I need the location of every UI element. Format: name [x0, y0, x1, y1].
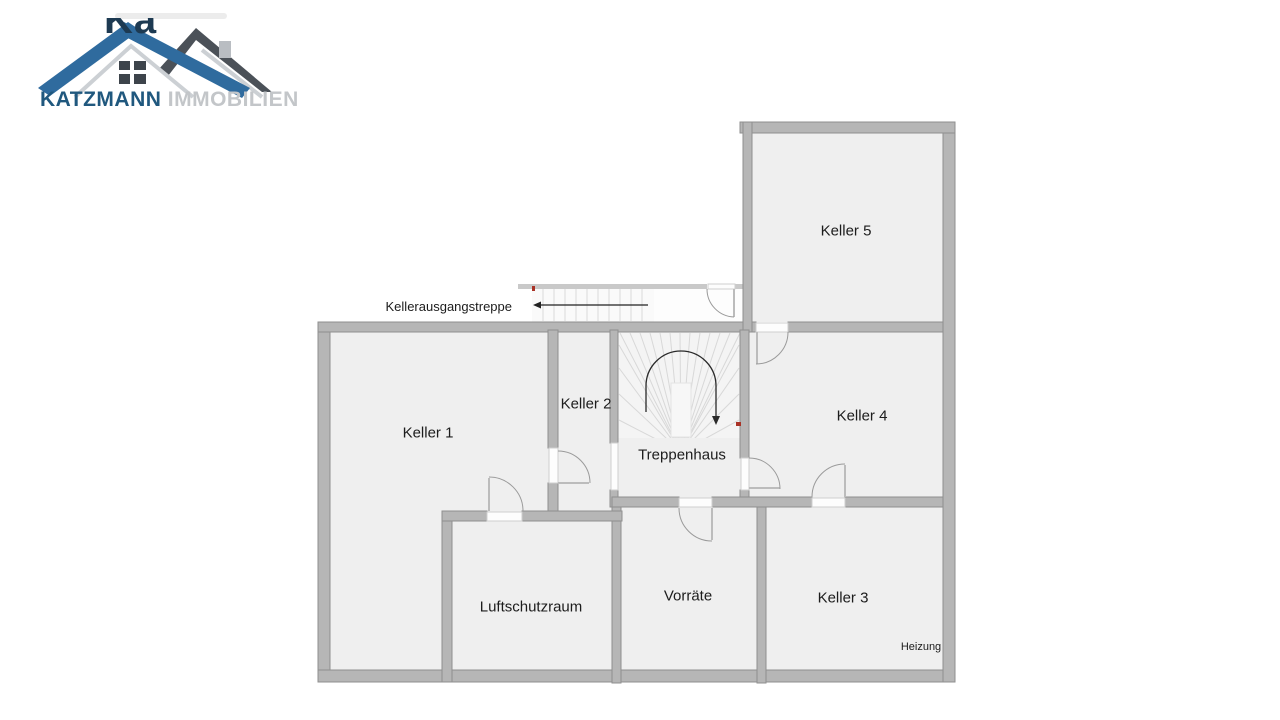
wall-luftschutzraum-top	[442, 511, 487, 521]
wall-vorraete-keller3	[757, 503, 766, 683]
room-label-keller-3: Keller 3	[818, 590, 869, 607]
door-opening	[812, 498, 845, 507]
wall-mid-horizontal	[712, 497, 812, 507]
room-label-keller-4: Keller 4	[837, 408, 888, 425]
door-opening	[487, 512, 522, 521]
door-opening	[611, 443, 618, 490]
stair-landing-floor	[654, 289, 743, 322]
wall-keller5-top	[740, 122, 955, 133]
room-label-treppenhaus: Treppenhaus	[638, 447, 726, 464]
wall-treppenhaus-keller4	[740, 330, 749, 458]
door-opening	[741, 458, 749, 490]
wall-outer-right	[943, 122, 955, 682]
wall-luftschutzraum-left	[442, 513, 452, 682]
wall-outer-bottom	[318, 670, 955, 682]
stair-newel-strip	[671, 383, 691, 437]
wall-mid-horizontal	[845, 497, 943, 507]
door-opening	[756, 323, 788, 332]
room-label-keller-1: Keller 1	[403, 425, 454, 442]
room-label-keller-5: Keller 5	[821, 223, 872, 240]
label-heizung: Heizung	[901, 641, 941, 653]
room-label-luftschutzraum: Luftschutzraum	[480, 599, 583, 616]
wall-top-main	[788, 322, 943, 332]
exterior-thin-wall	[518, 284, 707, 289]
wall-vorraete-left	[612, 497, 621, 683]
red-marker	[736, 422, 741, 426]
door-opening	[679, 498, 712, 507]
watermark-text: Ka	[104, 18, 194, 40]
wall-keller1-keller2	[548, 330, 558, 448]
wall-keller2-treppenhaus	[610, 330, 618, 443]
red-marker	[532, 286, 535, 291]
wall-outer-left	[318, 322, 330, 682]
floorplan-page: Ka KATZMANN IMMOBILIEN	[0, 0, 1280, 720]
door-opening	[708, 284, 735, 289]
brand-name: KATZMANN IMMOBILIEN	[40, 88, 299, 112]
wall-mid-horizontal	[612, 497, 679, 507]
wall-keller5-left	[743, 122, 752, 332]
brand-primary: KATZMANN	[40, 88, 161, 111]
label-kellerausgangstreppe: Kellerausgangstreppe	[372, 299, 512, 314]
room-label-keller-2: Keller 2	[561, 396, 612, 413]
wall-top-main	[318, 322, 756, 332]
brand-secondary: IMMOBILIEN	[168, 88, 299, 111]
exterior-thin-wall	[735, 284, 743, 289]
door-opening	[549, 448, 558, 483]
watermark-fragment: Ka	[104, 18, 194, 46]
room-label-vorraete: Vorräte	[664, 588, 712, 605]
wall-luftschutzraum-top	[522, 511, 622, 521]
